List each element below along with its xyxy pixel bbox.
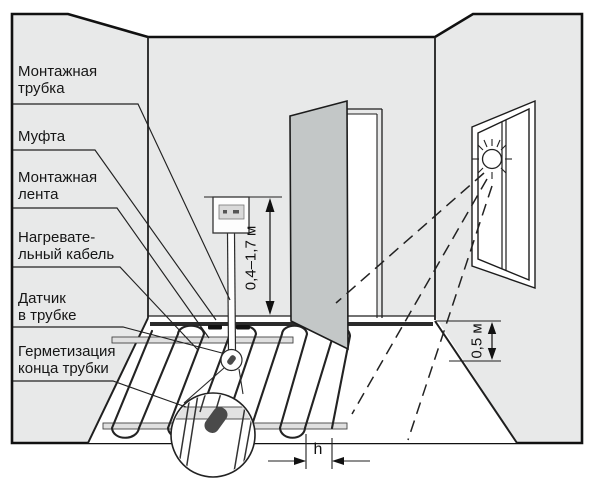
cable-coupling-mark bbox=[208, 325, 222, 330]
label-coupling: Муфта bbox=[18, 128, 118, 145]
doorway bbox=[345, 109, 382, 318]
dimension-wall-offset: 0,5 м bbox=[469, 323, 486, 358]
window bbox=[472, 101, 535, 288]
installation-diagram: Монтажная трубка Муфта Монтажная лента Н… bbox=[0, 0, 600, 488]
label-heating-cable: Нагревате- льный кабель bbox=[18, 229, 122, 263]
thermostat-display bbox=[219, 205, 244, 219]
door bbox=[290, 101, 348, 349]
label-tube-end-sealing: Герметизация конца трубки bbox=[18, 343, 128, 377]
cable-coupling-mark bbox=[236, 325, 250, 330]
sun-icon bbox=[472, 139, 512, 179]
label-sensor-in-tube: Датчик в трубке bbox=[18, 290, 118, 324]
dimension-thermostat-height: 0,4–1,7 м bbox=[243, 226, 260, 291]
label-mounting-tape: Монтажная лента bbox=[18, 169, 118, 203]
dimension-cable-spacing: h bbox=[314, 441, 323, 459]
label-mounting-tube: Монтажная трубка bbox=[18, 63, 118, 97]
